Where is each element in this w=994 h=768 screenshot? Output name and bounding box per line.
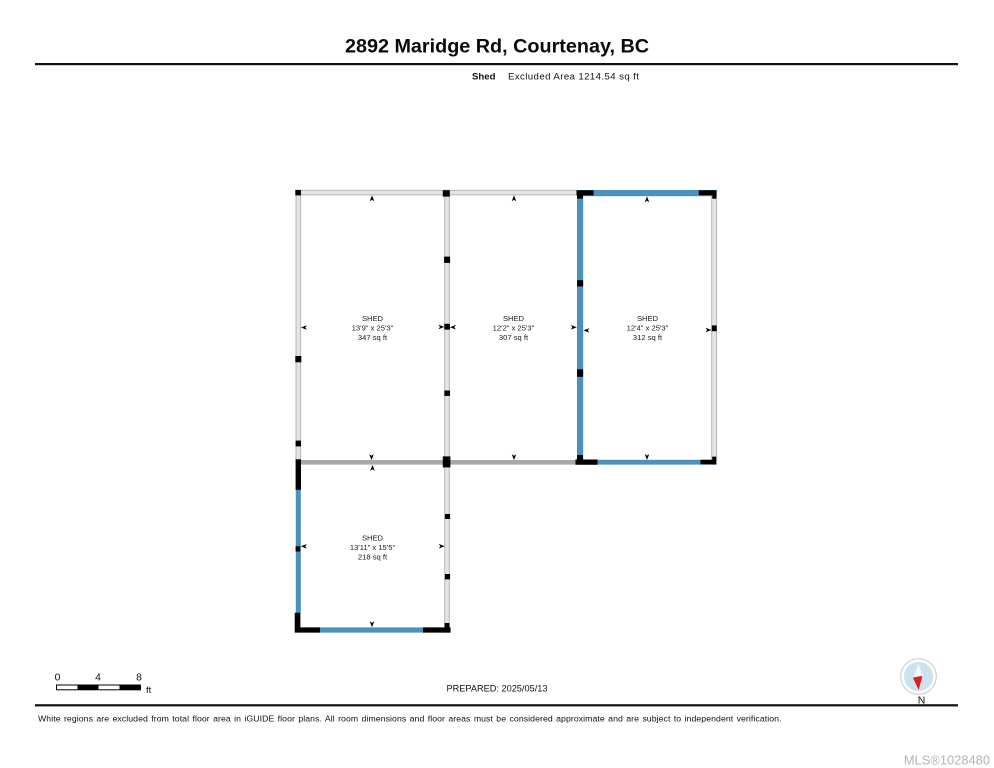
svg-text:PREPARED: 2025/05/13: PREPARED: 2025/05/13: [447, 684, 548, 694]
svg-text:2892 Maridge Rd, Courtenay, BC: 2892 Maridge Rd, Courtenay, BC: [345, 36, 649, 58]
svg-text:MLS®1028480: MLS®1028480: [904, 753, 990, 768]
svg-text:ft: ft: [146, 685, 152, 696]
svg-text:White regions are excluded fro: White regions are excluded from total fl…: [38, 714, 782, 724]
